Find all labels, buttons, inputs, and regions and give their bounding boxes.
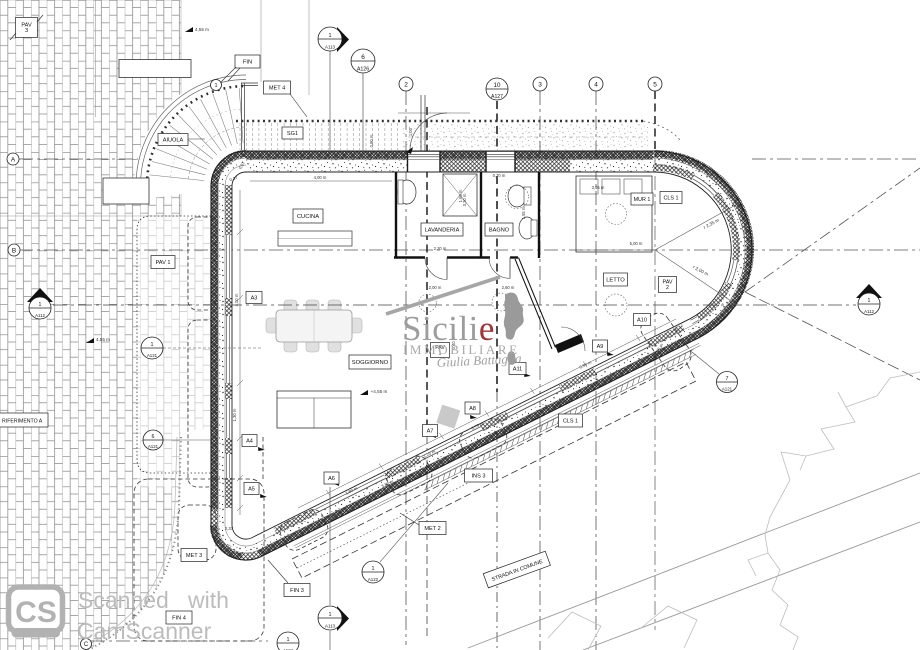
svg-text:6: 6 [152,434,155,440]
svg-text:2,00 m: 2,00 m [429,285,442,290]
svg-text:A: A [11,156,16,163]
svg-text:A122: A122 [368,577,379,582]
svg-text:MUR 1: MUR 1 [634,197,651,203]
svg-text:3,95 m: 3,95 m [592,185,605,190]
svg-text:A113: A113 [325,623,335,628]
svg-text:A121: A121 [722,387,733,392]
svg-text:5: 5 [653,81,657,88]
svg-text:RIFERIMENTO A: RIFERIMENTO A [2,419,43,425]
svg-text:A11: A11 [513,366,523,372]
svg-text:2: 2 [666,285,669,291]
svg-text:2,60 m: 2,60 m [502,285,515,290]
svg-text:MET 2: MET 2 [424,526,440,532]
svg-text:A113: A113 [325,44,335,49]
svg-text:4,00 m: 4,00 m [314,175,327,180]
svg-text:A3: A3 [251,295,258,301]
svg-text:A121: A121 [147,353,158,358]
svg-text:1: 1 [151,342,154,348]
svg-text:A9: A9 [597,344,604,350]
svg-text:1,30 m: 1,30 m [232,408,237,421]
svg-text:5,00 m: 5,00 m [630,241,643,246]
svg-text:SOGGIORNO: SOGGIORNO [352,360,389,366]
svg-text:2,20 m: 2,20 m [434,246,447,251]
svg-text:A121: A121 [148,444,159,449]
svg-text:1,55 m: 1,55 m [521,206,526,219]
svg-text:Scanned with: Scanned with [78,587,229,613]
svg-text:CS: CS [15,596,57,629]
svg-text:A5: A5 [248,486,255,492]
svg-text:1,00: 1,00 [408,127,413,136]
svg-text:4,55 m: 4,55 m [195,27,209,32]
svg-text:1: 1 [329,33,332,39]
svg-text:1: 1 [329,612,332,618]
svg-text:B: B [12,247,16,254]
svg-text:1: 1 [372,566,375,572]
svg-text:A10: A10 [637,317,647,323]
svg-text:6: 6 [361,54,365,61]
svg-text:CLS 1: CLS 1 [664,195,679,201]
svg-text:CamScanner: CamScanner [77,618,212,644]
svg-text:4: 4 [594,81,598,88]
svg-text:SG1: SG1 [287,131,298,137]
svg-text:4,55 m: 4,55 m [96,337,110,342]
svg-text:CUCINA: CUCINA [297,214,319,220]
svg-text:A112: A112 [35,313,45,318]
svg-text:0,90 m: 0,90 m [369,134,374,147]
svg-text:CLS 1: CLS 1 [563,418,578,424]
svg-text:3: 3 [25,28,28,34]
svg-text:A8: A8 [469,406,476,412]
svg-text:1: 1 [214,83,217,89]
svg-text:A126: A126 [357,66,369,72]
svg-text:3,30 m: 3,30 m [462,193,467,206]
svg-text:INS 3: INS 3 [472,473,486,479]
svg-text:BAGNO: BAGNO [489,227,510,233]
svg-text:FIN 3: FIN 3 [290,588,304,594]
svg-text:FIN: FIN [243,59,252,65]
svg-text:A112: A112 [864,309,874,314]
svg-text:A7: A7 [427,428,434,434]
svg-text:7: 7 [726,376,729,382]
svg-text:A6: A6 [328,476,335,482]
svg-text:+4,55 m: +4,55 m [371,389,388,394]
svg-text:10: 10 [494,82,501,89]
svg-text:2: 2 [404,81,408,88]
svg-text:LETTO: LETTO [606,277,625,283]
svg-text:0,37: 0,37 [225,526,234,531]
svg-text:1: 1 [868,298,871,304]
svg-text:A4: A4 [246,438,253,444]
svg-text:0,70 m: 0,70 m [493,173,506,178]
svg-text:3: 3 [538,81,542,88]
svg-text:A127: A127 [491,94,503,100]
svg-text:1: 1 [39,302,42,308]
svg-text:MET 3: MET 3 [186,553,202,559]
svg-text:AIUOLA: AIUOLA [163,137,184,143]
svg-text:MET 4: MET 4 [269,85,285,91]
svg-text:LAVANDERIA: LAVANDERIA [425,227,460,233]
svg-text:1: 1 [287,637,290,643]
svg-text:PAV 1: PAV 1 [155,260,170,266]
